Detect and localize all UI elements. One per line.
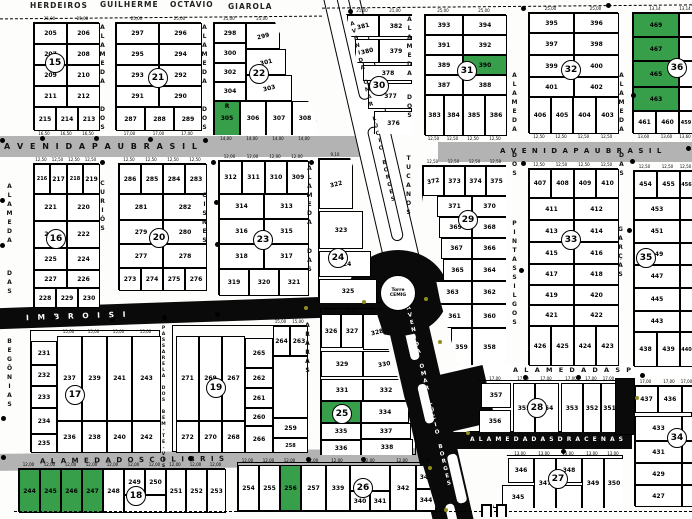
lot-400[interactable]: 400 (574, 55, 619, 77)
lot-366[interactable]: 366 (472, 238, 507, 259)
lot-408[interactable]: 408 (551, 169, 574, 198)
lot-unlabeled[interactable] (682, 485, 692, 507)
lot-305[interactable]: 305R (214, 101, 240, 136)
lot-349[interactable]: 349 (582, 458, 604, 509)
dimension-label: 13,00 (364, 307, 388, 312)
lot-243[interactable]: 243 (132, 336, 161, 421)
lot-385[interactable]: 385 (463, 95, 485, 136)
survey-mark (348, 9, 353, 14)
lot-322[interactable]: 322 (319, 159, 353, 209)
lot-438[interactable]: 438 (634, 332, 657, 367)
lot-246[interactable]: 246 (61, 469, 82, 513)
lot-321[interactable]: 321 (279, 269, 309, 296)
dimension-label: 15,00 (57, 329, 81, 334)
survey-mark (203, 138, 208, 143)
lot-222[interactable]: 222 (67, 221, 100, 248)
lot-unlabeled[interactable] (682, 463, 692, 485)
owner-name: GIAROLA (228, 2, 273, 11)
block-number-17: 17 (65, 385, 85, 405)
filled-lot[interactable] (615, 378, 635, 435)
lot-401[interactable]: 401 (529, 77, 574, 97)
lot-217[interactable]: 217 (50, 164, 67, 194)
dimension-label: 17,00 (675, 379, 692, 384)
block-number-18: 18 (126, 486, 146, 506)
lot-443[interactable]: 443 (634, 311, 680, 332)
lot-250[interactable]: 250 (145, 469, 166, 495)
block-19: 2712692672722702682652622612602662642632… (172, 325, 307, 452)
lot-418[interactable]: 418 (574, 264, 619, 285)
lot-336[interactable]: 336 (321, 440, 361, 456)
block-29: 3723733743753713703693683673663653643633… (422, 165, 506, 365)
lot-394[interactable]: 394 (463, 15, 507, 35)
lot-375[interactable]: 375 (486, 166, 507, 196)
lot-unlabeled[interactable] (680, 220, 692, 243)
dimension-label: 13,14 (673, 6, 692, 11)
lot-233[interactable]: 233 (31, 386, 57, 408)
alameda-das-dracenas-label: A L A M E D A D A S D R A C E N A S (470, 436, 624, 443)
lot-423[interactable]: 423 (596, 326, 619, 366)
survey-mark (519, 268, 524, 273)
lot-436[interactable]: 436 (658, 386, 682, 413)
lot-268[interactable]: 268 (222, 421, 245, 453)
lot-342[interactable]: 342 (390, 465, 416, 511)
lot-306[interactable]: 306 (240, 101, 266, 136)
lot-356[interactable]: 356 (479, 410, 511, 433)
lot-240[interactable]: 240 (107, 421, 132, 453)
lot-262[interactable]: 262 (245, 368, 273, 388)
lot-329[interactable]: 329 (321, 351, 363, 377)
lot-unlabeled[interactable] (680, 265, 692, 288)
utility-mark (635, 396, 639, 400)
lot-386[interactable]: 386 (485, 95, 507, 136)
lot-unlabeled[interactable] (680, 288, 692, 311)
lot-291[interactable]: 291 (116, 86, 159, 107)
dimension-label: 25,00 (539, 6, 563, 11)
lot-406[interactable]: 406 (529, 97, 551, 134)
street-label-passarela-dos-bem-te-vis: PASSARELA DOS BEM-TE-VIS (161, 326, 166, 456)
street-label-alameda: ALAMEDA (6, 183, 13, 261)
block-number-34: 34 (667, 428, 687, 448)
lot-206[interactable]: 206 (67, 23, 100, 44)
block-number-21: 21 (148, 68, 168, 88)
lot-403[interactable]: 403 (596, 97, 619, 134)
lot-357[interactable]: 357 (481, 383, 511, 408)
lot-287[interactable]: 287 (116, 107, 145, 131)
lot-278[interactable]: 278 (163, 244, 207, 268)
lot-256[interactable]: 256 (280, 465, 301, 511)
lot-231[interactable]: 231 (31, 341, 57, 365)
lot-346[interactable]: 346 (508, 458, 534, 483)
dimension-label: 12,00 (263, 154, 287, 159)
dimension-label: 12,50 (483, 136, 507, 141)
lot-285[interactable]: 285 (141, 164, 163, 194)
lot-461[interactable]: 461 (633, 111, 656, 134)
lot-341[interactable]: 341 (370, 491, 390, 511)
lot-218[interactable]: 218 (67, 164, 83, 194)
lot-359[interactable]: 359 (451, 328, 472, 366)
lot-327[interactable]: 327 (341, 314, 363, 348)
lot-259[interactable]: 259 (273, 418, 308, 438)
lot-288[interactable]: 288 (145, 107, 174, 131)
lot-241[interactable]: 241 (107, 336, 132, 421)
survey-mark (94, 136, 99, 141)
street-label-dos: DOS (201, 106, 208, 134)
dimension-label: 21,00 (383, 8, 407, 13)
lot-205[interactable]: 205 (34, 23, 67, 44)
lot-370[interactable]: 370 (472, 196, 507, 217)
lot-317[interactable]: 317 (264, 244, 309, 269)
survey-mark (100, 160, 105, 165)
lot-416[interactable]: 416 (574, 242, 619, 264)
lot-245[interactable]: 245 (40, 469, 61, 513)
lot-460[interactable]: 460 (656, 111, 679, 134)
dimension-label: 12,50 (79, 157, 103, 162)
lot-337[interactable]: 337 (361, 423, 411, 439)
lot-219[interactable]: 219 (83, 164, 100, 194)
lot-335[interactable]: 335 (321, 423, 361, 440)
lot-387[interactable]: 387 (425, 75, 463, 95)
lot-232[interactable]: 232 (31, 365, 57, 386)
survey-mark (211, 160, 216, 165)
lot-367[interactable]: 367 (441, 238, 472, 259)
block-26: 254255256257339340341342343344 (237, 462, 437, 512)
lot-353[interactable]: 353 (561, 383, 583, 433)
lot-253[interactable]: 253 (207, 469, 226, 513)
block-number-22: 22 (249, 64, 269, 84)
lot-412[interactable]: 412 (574, 198, 619, 220)
lot-254[interactable]: 254 (238, 465, 259, 511)
street-label-alameda: ALAMEDA (406, 16, 413, 80)
survey-mark (521, 6, 526, 11)
lot-239[interactable]: 239 (82, 336, 107, 421)
lot-225[interactable]: 225 (34, 248, 67, 270)
lot-300[interactable]: 300 (214, 43, 246, 63)
lot-234[interactable]: 234 (31, 408, 57, 434)
lot-445[interactable]: 445 (634, 288, 680, 311)
dimension-label: 12,50 (161, 157, 185, 162)
lot-248[interactable]: 248 (103, 469, 124, 513)
block-15: 205206207208209210211212215214213 (33, 22, 99, 130)
lot-289[interactable]: 289 (174, 107, 202, 131)
lot-334[interactable]: 334 (361, 401, 409, 423)
utility-mark (444, 508, 448, 512)
lot-407[interactable]: 407 (529, 169, 551, 198)
dimension-label: 21,00 (350, 8, 374, 13)
lot-unlabeled[interactable] (679, 13, 692, 37)
lot-421[interactable]: 421 (529, 305, 574, 326)
lot-296[interactable]: 296 (159, 23, 202, 44)
lot-362[interactable]: 362 (472, 281, 507, 304)
lot-264[interactable]: 264 (273, 326, 290, 356)
dimension-label: 14,00 (292, 136, 316, 141)
lot-364[interactable]: 364 (472, 259, 507, 281)
lot-427[interactable]: 427 (635, 485, 682, 507)
lot-unlabeled[interactable] (682, 386, 692, 413)
lot-392[interactable]: 392 (463, 35, 507, 55)
lot-383[interactable]: 383 (425, 95, 444, 136)
lot-417[interactable]: 417 (529, 264, 574, 285)
lot-398[interactable]: 398 (574, 33, 619, 55)
lot-267[interactable]: 267 (222, 336, 245, 421)
lot-247[interactable]: 247 (82, 469, 103, 513)
utility-mark (362, 300, 366, 304)
lot-251[interactable]: 251 (166, 469, 186, 513)
lot-unlabeled[interactable] (679, 87, 692, 111)
lot-302[interactable]: 302 (214, 63, 246, 82)
street-label-alameda: ALAMEDA (618, 72, 625, 142)
lot-391[interactable]: 391 (425, 35, 463, 55)
lot-238[interactable]: 238 (82, 421, 107, 453)
lot-384[interactable]: 384 (444, 95, 463, 136)
block-33: 4074084094104114124134144154164174184194… (528, 168, 618, 365)
street-label-curi-s: CURIÓS (99, 180, 106, 232)
lot-286[interactable]: 286 (119, 164, 141, 194)
lot-325[interactable]: 325 (319, 279, 377, 304)
lot-295[interactable]: 295 (116, 44, 159, 65)
lot-467[interactable]: 467 (633, 37, 679, 61)
dimension-label: 14,00 (240, 136, 264, 141)
dimension-label: 15,00 (82, 329, 106, 334)
survey-mark (1, 455, 6, 460)
lot-429[interactable]: 429 (635, 463, 682, 485)
lot-242[interactable]: 242 (132, 421, 161, 453)
lot-311[interactable]: 311 (242, 161, 265, 194)
lot-unlabeled[interactable] (680, 198, 692, 220)
lot-395[interactable]: 395 (529, 13, 574, 33)
survey-mark (523, 375, 528, 380)
lot-273[interactable]: 273 (119, 268, 141, 291)
dimension-label: 12,00 (278, 458, 302, 463)
lot-374[interactable]: 374 (465, 166, 486, 196)
lot-228[interactable]: 228 (34, 288, 56, 308)
lot-419[interactable]: 419 (529, 285, 574, 305)
avenida-pau-brasil-east-label: A V E N I D A P A U B R A S I L (500, 147, 663, 155)
lot-360[interactable]: 360 (472, 304, 507, 328)
lot-220[interactable]: 220 (67, 194, 100, 221)
block-number-15: 15 (45, 53, 65, 73)
lot-323[interactable]: 323 (319, 211, 363, 249)
lot-352[interactable]: 352 (583, 383, 601, 433)
lot-372[interactable]: 372 (423, 166, 444, 196)
lot-314[interactable]: 314 (219, 194, 264, 219)
survey-mark (215, 242, 220, 247)
dimension-label: 17,00 (634, 379, 658, 384)
survey-mark (40, 136, 45, 141)
lot-216[interactable]: 216 (34, 164, 50, 194)
lot-236[interactable]: 236 (57, 421, 82, 453)
lot-235[interactable]: 235 (31, 434, 57, 453)
lot-439[interactable]: 439 (657, 332, 680, 367)
lot-409[interactable]: 409 (574, 169, 596, 198)
lot-373[interactable]: 373 (444, 166, 465, 196)
lot-unlabeled[interactable] (679, 37, 692, 61)
dimension-label: 12,00 (301, 458, 325, 463)
lot-350[interactable]: 350 (604, 458, 624, 509)
lot-310[interactable]: 310 (265, 161, 287, 194)
lot-270[interactable]: 270 (199, 421, 222, 453)
lot-396[interactable]: 396 (574, 13, 619, 33)
street-label-dos: DOS (99, 106, 106, 134)
block-number-27: 27 (548, 469, 568, 489)
lot-275[interactable]: 275 (163, 268, 185, 291)
dimension-label: 12,00 (204, 462, 228, 467)
street-label-cisnes: CISNES (201, 192, 208, 247)
lot-281[interactable]: 281 (119, 194, 163, 220)
lot-210[interactable]: 210 (67, 65, 100, 86)
lot-425[interactable]: 425 (551, 326, 574, 366)
lot-265[interactable]: 265 (245, 338, 273, 368)
lot-451[interactable]: 451 (634, 220, 680, 243)
survey-mark (521, 161, 526, 166)
survey-mark (631, 93, 636, 98)
dimension-label: 12,50 (595, 134, 619, 139)
dimension-label: 13,00 (532, 451, 556, 456)
street-label-alameda: ALAMEDA (511, 72, 518, 142)
lot-331[interactable]: 331 (321, 379, 363, 401)
lot-271[interactable]: 271 (176, 336, 199, 421)
lot-304[interactable]: 304 (214, 82, 246, 101)
lot-361[interactable]: 361 (437, 304, 472, 328)
street-label-das: DAS (618, 152, 625, 178)
lot-402[interactable]: 402 (574, 77, 619, 97)
lot-214[interactable]: 214 (56, 107, 78, 131)
lot-426[interactable]: 426 (529, 326, 551, 366)
dimension-label: 13,00 (508, 451, 532, 456)
dimension-label: 17,00 (534, 376, 558, 381)
lot-307[interactable]: 307 (266, 101, 292, 136)
lot-397[interactable]: 397 (529, 33, 574, 55)
lot-283[interactable]: 283 (185, 164, 207, 194)
lot-257[interactable]: 257 (301, 465, 326, 511)
lot-244[interactable]: 244 (19, 469, 40, 513)
street-label-alameda: ALAMEDA (201, 24, 208, 104)
lot-229[interactable]: 229 (56, 288, 78, 308)
street-label-gar-as: GARÇAS (617, 226, 624, 288)
block-number-26: 26 (353, 478, 373, 498)
lot-276[interactable]: 276 (185, 268, 207, 291)
lot-455[interactable]: 455 (657, 171, 680, 198)
survey-mark (306, 457, 311, 462)
lot-258[interactable]: 258 (273, 438, 308, 453)
dimension-label: 12,50 (527, 134, 551, 139)
survey-mark (627, 228, 632, 233)
cadastral-map: A V E N I D A P A U B R A S I LA V E N I… (0, 0, 692, 519)
lot-420[interactable]: 420 (574, 285, 619, 305)
utility-mark (424, 297, 428, 301)
lot-299[interactable]: 299 (246, 23, 280, 49)
lot-224[interactable]: 224 (67, 248, 100, 270)
block-number-36: 36 (667, 58, 687, 78)
lot-312[interactable]: 312 (219, 161, 242, 194)
lot-298[interactable]: 298 (214, 23, 246, 43)
lot-459[interactable]: 459 (679, 111, 692, 134)
lot-230[interactable]: 230 (78, 288, 100, 308)
lot-320[interactable]: 320 (249, 269, 279, 296)
dimension-label: 25,00 (584, 6, 608, 11)
dimension-label: 15,00 (107, 329, 131, 334)
lot-424[interactable]: 424 (574, 326, 596, 366)
lot-469[interactable]: 469 (633, 13, 679, 37)
lot-272[interactable]: 272 (176, 421, 199, 453)
lot-211[interactable]: 211 (34, 86, 67, 107)
street-label-araras: ARARAS (304, 322, 311, 377)
lot-308[interactable]: 308 (292, 101, 318, 136)
sheet-mark (481, 504, 492, 517)
lot-422[interactable]: 422 (574, 305, 619, 326)
street-label-tucanos: TUCANOS (405, 155, 412, 223)
lot-unlabeled[interactable] (680, 243, 692, 265)
block-number-19: 19 (206, 378, 226, 398)
lot-437[interactable]: 437 (635, 386, 658, 413)
lot-393[interactable]: 393 (425, 15, 463, 35)
lot-237[interactable]: 237 (57, 336, 82, 421)
survey-mark (148, 137, 153, 142)
survey-mark (309, 160, 314, 165)
lot-453[interactable]: 453 (634, 198, 680, 220)
block-35: 454455456453451449447445443438439440 (633, 170, 692, 366)
lot-284[interactable]: 284 (163, 164, 185, 194)
lot-338[interactable]: 338 (361, 439, 413, 456)
lot-221[interactable]: 221 (34, 194, 67, 221)
block-number-31: 31 (457, 61, 477, 81)
lot-440[interactable]: 440 (680, 332, 692, 367)
lot-463[interactable]: 463 (633, 87, 679, 111)
reserved-marker: R (215, 103, 239, 110)
dimension-label: 13,00 (339, 307, 363, 312)
lot-326[interactable]: 326 (321, 314, 341, 348)
lot-456[interactable]: 456 (680, 171, 692, 198)
dimension-label: 12,50 (572, 134, 596, 139)
dimension-label: 12,00 (241, 154, 265, 159)
lot-339[interactable]: 339 (326, 465, 350, 511)
lot-unlabeled[interactable] (273, 356, 308, 418)
lot-411[interactable]: 411 (529, 198, 574, 220)
lot-454[interactable]: 454 (634, 171, 657, 198)
lot-261[interactable]: 261 (245, 388, 273, 408)
lot-365[interactable]: 365 (443, 259, 472, 281)
lot-227[interactable]: 227 (34, 270, 67, 288)
lot-266[interactable]: 266 (245, 426, 273, 453)
lot-297[interactable]: 297 (116, 23, 159, 44)
lot-255[interactable]: 255 (259, 465, 280, 511)
lot-274[interactable]: 274 (141, 268, 163, 291)
torre-cemig: TorreCEMIG (380, 275, 416, 311)
block-23: 312311310309314313316315318317319320321 (218, 160, 308, 295)
lot-404[interactable]: 404 (573, 97, 596, 134)
lot-226[interactable]: 226 (67, 270, 100, 288)
lot-215[interactable]: 215 (34, 107, 56, 131)
lot-213[interactable]: 213 (78, 107, 100, 131)
avenida-pau-brasil-west-label: A V E N I D A P A U B R A S I L (4, 142, 199, 151)
lot-358[interactable]: 358 (472, 328, 507, 366)
lot-208[interactable]: 208 (67, 44, 100, 65)
lot-405[interactable]: 405 (551, 97, 573, 134)
lot-212[interactable]: 212 (67, 86, 100, 107)
dimension-label: 12,50 (633, 164, 657, 169)
dimension-label: 12,50 (549, 134, 573, 139)
block-number-24: 24 (328, 248, 348, 268)
lot-313[interactable]: 313 (264, 194, 309, 219)
lot-290[interactable]: 290 (159, 86, 202, 107)
lot-unlabeled[interactable] (680, 311, 692, 332)
lot-447[interactable]: 447 (634, 265, 680, 288)
lot-252[interactable]: 252 (186, 469, 207, 513)
lot-260[interactable]: 260 (245, 408, 273, 426)
lot-294[interactable]: 294 (159, 44, 202, 65)
lot-410[interactable]: 410 (596, 169, 619, 198)
survey-mark (214, 200, 219, 205)
lot-319[interactable]: 319 (219, 269, 249, 296)
